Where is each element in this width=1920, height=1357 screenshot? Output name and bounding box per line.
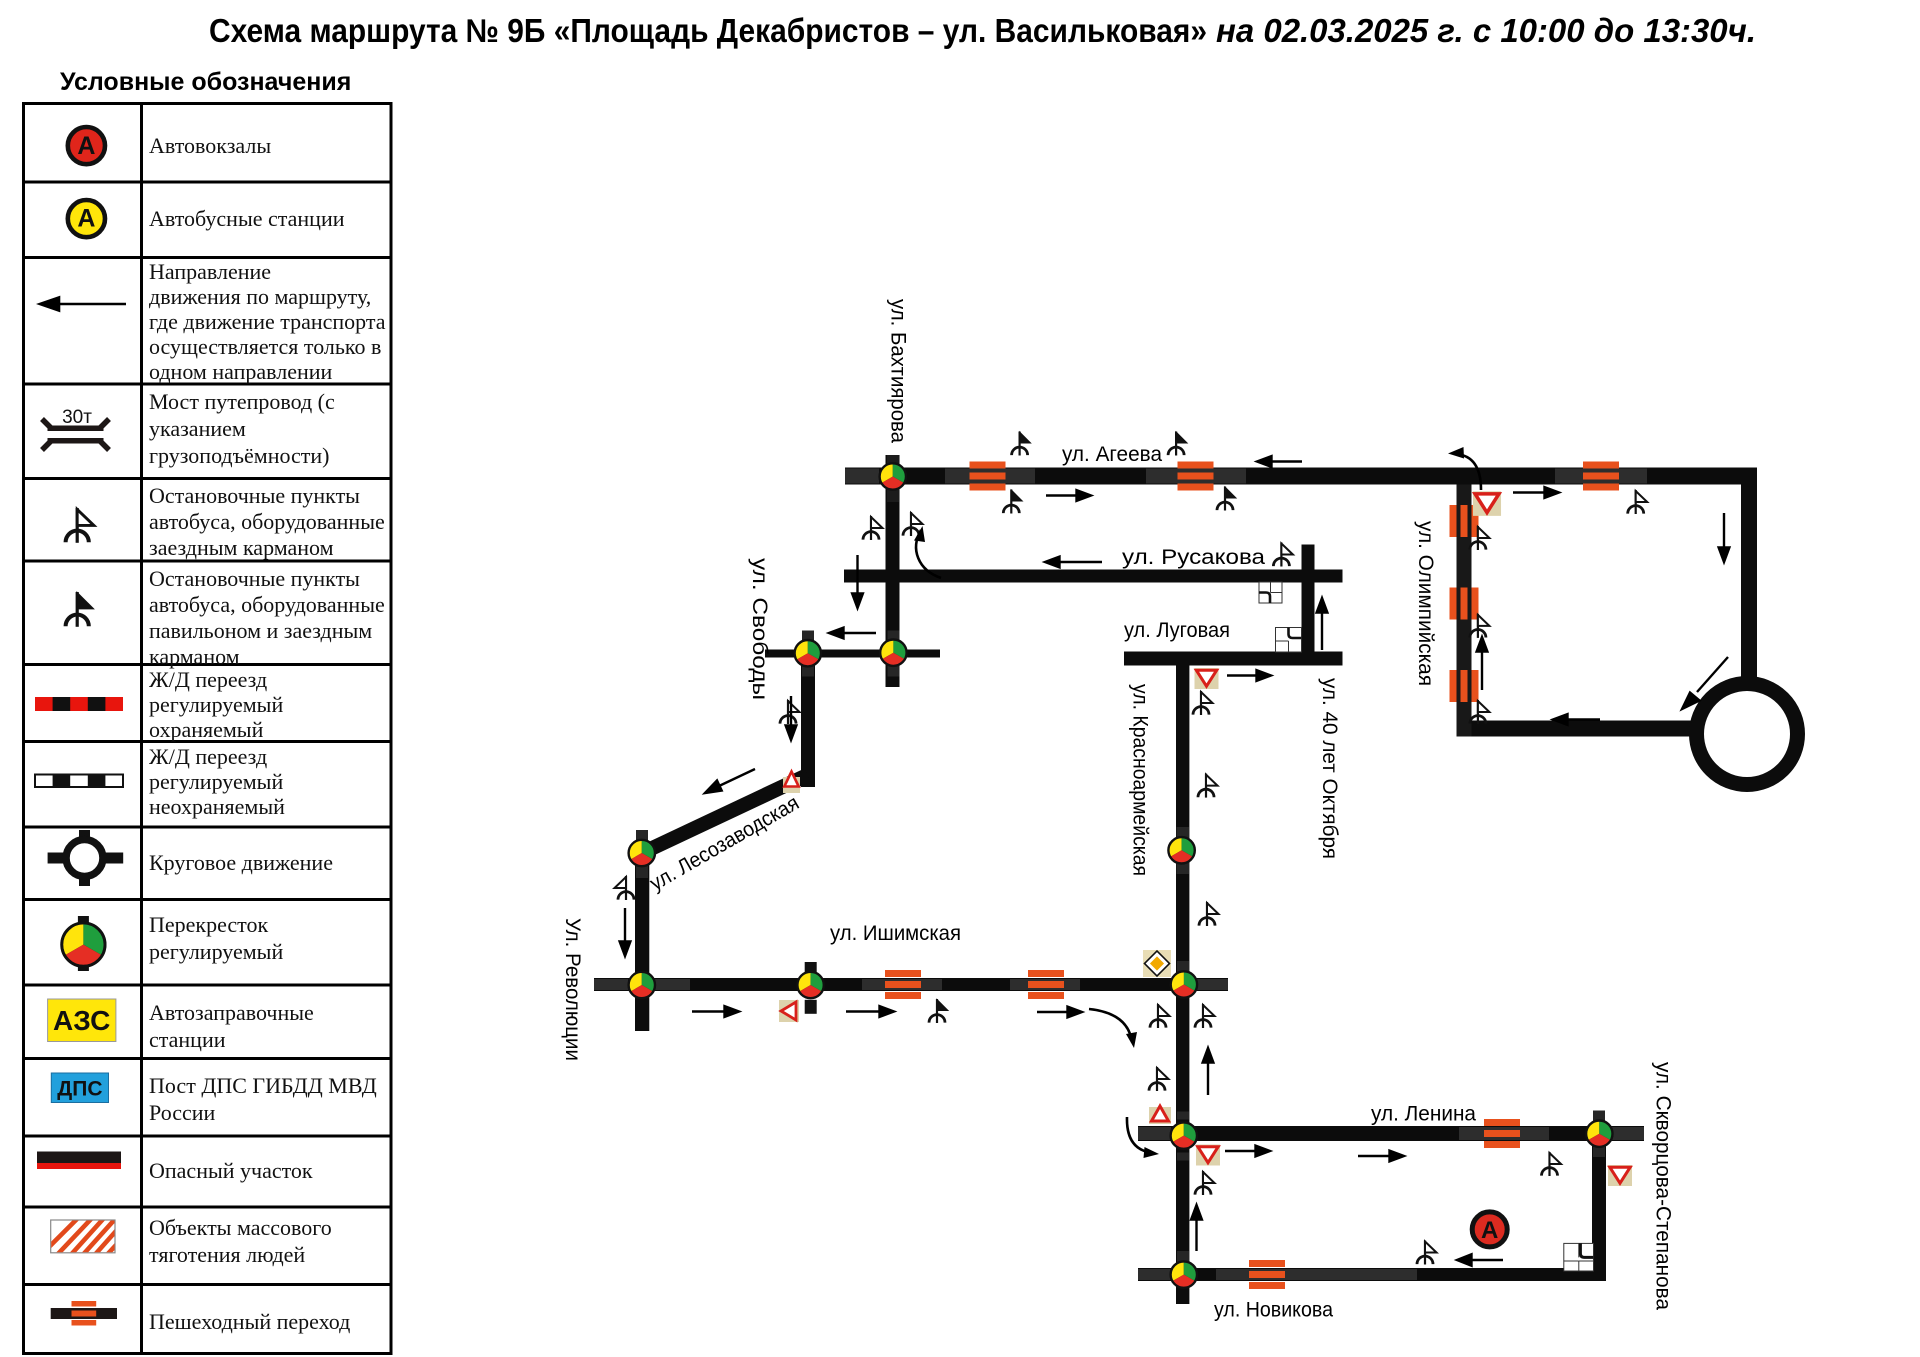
svg-text:движения по маршруту,: движения по маршруту,: [149, 284, 371, 309]
svg-text:ул. Ленина: ул. Ленина: [1371, 1103, 1476, 1126]
svg-text:Круговое движение: Круговое движение: [149, 850, 333, 875]
svg-text:Пешеходный переход: Пешеходный переход: [149, 1309, 350, 1334]
svg-text:указанием: указанием: [149, 416, 246, 441]
svg-text:ул. Бахтиярова: ул. Бахтиярова: [887, 299, 910, 443]
svg-text:осуществляется только в: осуществляется только в: [149, 334, 381, 359]
svg-text:А: А: [77, 132, 95, 160]
svg-text:одном направлении: одном направлении: [149, 359, 333, 384]
svg-text:Остановочные пункты: Остановочные пункты: [149, 483, 360, 508]
svg-text:Ул. Революции: Ул. Революции: [561, 918, 584, 1061]
svg-text:Ж/Д переезд: Ж/Д переезд: [149, 744, 267, 769]
svg-text:Ж/Д переезд: Ж/Д переезд: [149, 667, 267, 692]
svg-text:неохраняемый: неохраняемый: [149, 794, 285, 819]
svg-text:Автовокзалы: Автовокзалы: [149, 133, 271, 158]
svg-text:Пост ДПС ГИБДД МВД: Пост ДПС ГИБДД МВД: [149, 1073, 377, 1098]
svg-text:павильоном и заездным: павильоном и заездным: [149, 618, 372, 643]
svg-text:ул. Свободы: ул. Свободы: [748, 558, 771, 700]
svg-text:Направление: Направление: [149, 259, 271, 284]
svg-text:ДПС: ДПС: [57, 1078, 102, 1101]
svg-text:Автобусные станции: Автобусные станции: [149, 206, 345, 231]
svg-text:регулируемый: регулируемый: [149, 692, 283, 717]
svg-text:А: А: [1481, 1217, 1498, 1244]
svg-text:А: А: [77, 205, 95, 233]
svg-text:ул. Новикова: ул. Новикова: [1214, 1299, 1333, 1322]
svg-text:АЗС: АЗС: [53, 1005, 110, 1036]
svg-text:30т: 30т: [62, 407, 92, 428]
svg-text:Перекресток: Перекресток: [149, 912, 269, 937]
svg-text:Остановочные пункты: Остановочные пункты: [149, 566, 360, 591]
svg-text:регулируемый: регулируемый: [149, 939, 283, 964]
svg-text:Опасный участок: Опасный участок: [149, 1158, 313, 1183]
svg-text:охраняемый: охраняемый: [149, 717, 264, 742]
svg-text:тяготения людей: тяготения людей: [149, 1242, 305, 1267]
svg-text:регулируемый: регулируемый: [149, 769, 283, 794]
svg-text:где движение транспорта: где движение транспорта: [149, 309, 386, 334]
svg-text:Автозаправочные: Автозаправочные: [149, 1000, 314, 1025]
svg-text:автобуса, оборудованные: автобуса, оборудованные: [149, 509, 385, 534]
svg-text:ул. Русакова: ул. Русакова: [1122, 546, 1265, 569]
svg-text:на 02.03.2025 г. с 10:00 до 13: на 02.03.2025 г. с 10:00 до 13:30ч.: [1216, 12, 1756, 49]
svg-text:ул. Олимпийская: ул. Олимпийская: [1414, 521, 1437, 686]
svg-text:ул. Красноармейская: ул. Красноармейская: [1129, 684, 1152, 876]
svg-text:станции: станции: [149, 1027, 226, 1052]
svg-text:заездным карманом: заездным карманом: [149, 535, 334, 560]
svg-text:Мост путепровод (с: Мост путепровод (с: [149, 389, 335, 414]
svg-text:грузоподъёмности): грузоподъёмности): [149, 443, 330, 468]
svg-text:Условные обозначения: Условные обозначения: [60, 68, 351, 96]
svg-text:ул. Луговая: ул. Луговая: [1124, 619, 1230, 642]
svg-text:Схема маршрута № 9Б «Площадь Д: Схема маршрута № 9Б «Площадь Декабристов…: [209, 12, 1207, 49]
svg-text:ул. Ишимская: ул. Ишимская: [830, 922, 961, 945]
svg-text:карманом: карманом: [149, 644, 240, 669]
svg-text:ул. Агеева: ул. Агеева: [1062, 443, 1162, 466]
svg-text:автобуса, оборудованные: автобуса, оборудованные: [149, 592, 385, 617]
svg-text:ул. Скворцова-Степанова: ул. Скворцова-Степанова: [1652, 1062, 1675, 1310]
svg-text:ул. 40 лет Октября: ул. 40 лет Октября: [1318, 678, 1341, 859]
svg-text:России: России: [149, 1100, 216, 1125]
svg-text:Объекты массового: Объекты массового: [149, 1215, 332, 1240]
